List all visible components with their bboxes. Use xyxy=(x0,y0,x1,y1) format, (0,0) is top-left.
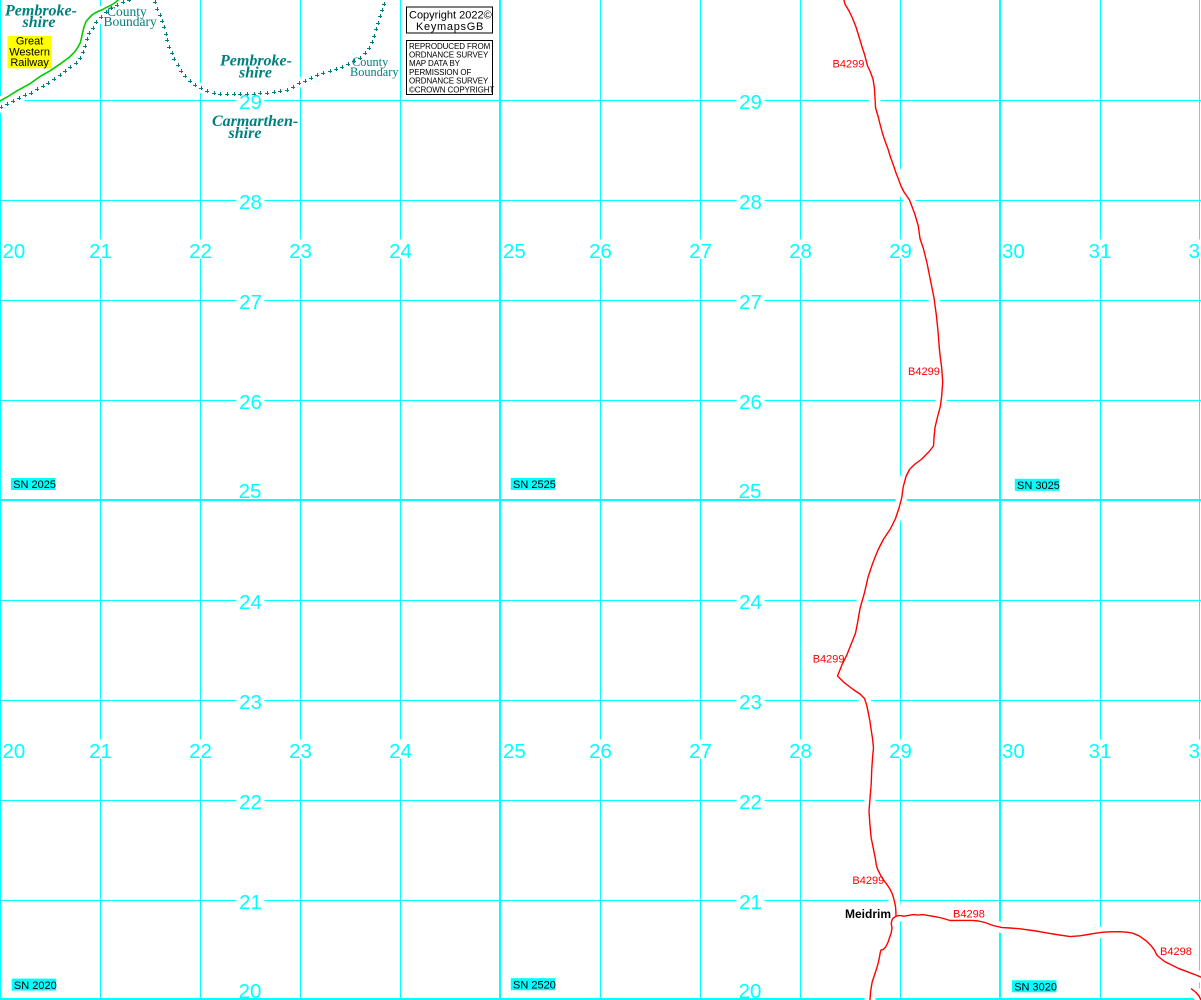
svg-text:REPRODUCED FROM: REPRODUCED FROM xyxy=(409,42,491,51)
svg-text:28: 28 xyxy=(789,740,812,763)
svg-text:29: 29 xyxy=(239,91,262,114)
svg-text:24: 24 xyxy=(739,591,762,614)
svg-text:SN 2525: SN 2525 xyxy=(513,479,556,491)
svg-text:Railway: Railway xyxy=(10,57,49,69)
svg-text:ORDNANCE SURVEY: ORDNANCE SURVEY xyxy=(409,77,489,86)
svg-text:22: 22 xyxy=(189,240,212,263)
svg-text:23: 23 xyxy=(239,691,262,714)
svg-text:21: 21 xyxy=(89,240,112,263)
svg-text:23: 23 xyxy=(739,691,762,714)
svg-text:26: 26 xyxy=(589,240,612,263)
svg-text:SN 2025: SN 2025 xyxy=(13,479,56,491)
svg-text:30: 30 xyxy=(1002,240,1025,263)
svg-text:SN 2020: SN 2020 xyxy=(14,980,57,992)
svg-text:B4299: B4299 xyxy=(813,653,845,665)
svg-text:28: 28 xyxy=(789,240,812,263)
svg-text:27: 27 xyxy=(689,740,712,763)
svg-text:29: 29 xyxy=(889,740,912,763)
svg-text:shire: shire xyxy=(238,65,272,82)
svg-text:26: 26 xyxy=(739,391,762,414)
svg-text:B4299: B4299 xyxy=(908,366,940,378)
svg-text:21: 21 xyxy=(239,891,262,914)
svg-text:20: 20 xyxy=(739,980,762,1000)
svg-text:Meidrim: Meidrim xyxy=(845,907,891,921)
svg-text:24: 24 xyxy=(389,740,412,763)
svg-text:B4298: B4298 xyxy=(953,908,985,920)
svg-text:22: 22 xyxy=(239,791,262,814)
svg-text:25: 25 xyxy=(239,480,262,503)
svg-text:31: 31 xyxy=(1089,740,1112,763)
svg-text:25: 25 xyxy=(503,240,526,263)
svg-text:27: 27 xyxy=(239,291,262,314)
svg-text:29: 29 xyxy=(889,240,912,263)
svg-text:©CROWN COPYRIGHT: ©CROWN COPYRIGHT xyxy=(409,85,494,94)
svg-text:B4299: B4299 xyxy=(852,875,884,887)
svg-text:30: 30 xyxy=(1002,740,1025,763)
svg-text:PERMISSION OF: PERMISSION OF xyxy=(409,68,471,77)
svg-text:Boundary: Boundary xyxy=(350,65,399,79)
svg-text:Copyright 2022©: Copyright 2022© xyxy=(409,10,492,22)
svg-text:29: 29 xyxy=(739,91,762,114)
svg-text:25: 25 xyxy=(503,740,526,763)
svg-text:20: 20 xyxy=(3,740,26,763)
svg-text:27: 27 xyxy=(689,240,712,263)
svg-text:26: 26 xyxy=(589,740,612,763)
svg-text:21: 21 xyxy=(739,891,762,914)
svg-text:22: 22 xyxy=(189,740,212,763)
svg-text:shire: shire xyxy=(228,125,262,142)
svg-text:SN 2520: SN 2520 xyxy=(513,979,556,991)
svg-text:20: 20 xyxy=(3,240,26,263)
svg-text:25: 25 xyxy=(739,480,762,503)
svg-text:31: 31 xyxy=(1089,240,1112,263)
svg-text:27: 27 xyxy=(739,291,762,314)
svg-text:KeymapsGB: KeymapsGB xyxy=(416,21,484,33)
svg-text:32: 32 xyxy=(1189,240,1201,263)
svg-text:26: 26 xyxy=(239,391,262,414)
svg-text:23: 23 xyxy=(289,240,312,263)
svg-text:20: 20 xyxy=(239,980,262,1000)
svg-text:SN 3025: SN 3025 xyxy=(1017,480,1060,492)
svg-text:B4298: B4298 xyxy=(1160,946,1192,958)
svg-text:21: 21 xyxy=(89,740,112,763)
svg-text:28: 28 xyxy=(739,191,762,214)
svg-text:ORDNANCE SURVEY: ORDNANCE SURVEY xyxy=(409,51,489,60)
svg-text:32: 32 xyxy=(1189,740,1201,763)
svg-text:22: 22 xyxy=(739,791,762,814)
svg-text:B4299: B4299 xyxy=(833,59,865,71)
svg-text:24: 24 xyxy=(239,591,262,614)
svg-text:shire: shire xyxy=(22,14,56,31)
svg-text:23: 23 xyxy=(289,740,312,763)
svg-text:MAP DATA BY: MAP DATA BY xyxy=(409,59,461,68)
svg-text:Boundary: Boundary xyxy=(104,14,157,29)
svg-text:28: 28 xyxy=(239,191,262,214)
svg-text:24: 24 xyxy=(389,240,412,263)
svg-text:SN 3020: SN 3020 xyxy=(1014,982,1057,994)
